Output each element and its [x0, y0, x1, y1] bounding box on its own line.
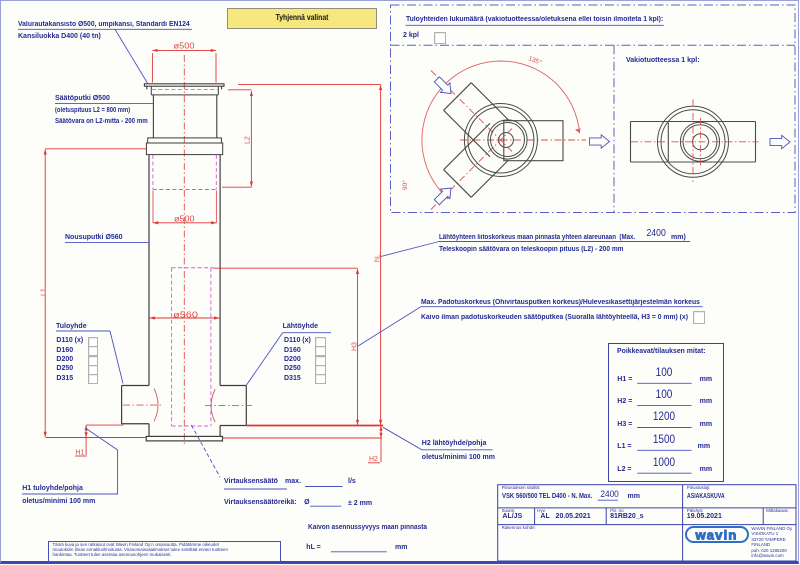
svg-text:wavin: wavin — [694, 528, 737, 543]
